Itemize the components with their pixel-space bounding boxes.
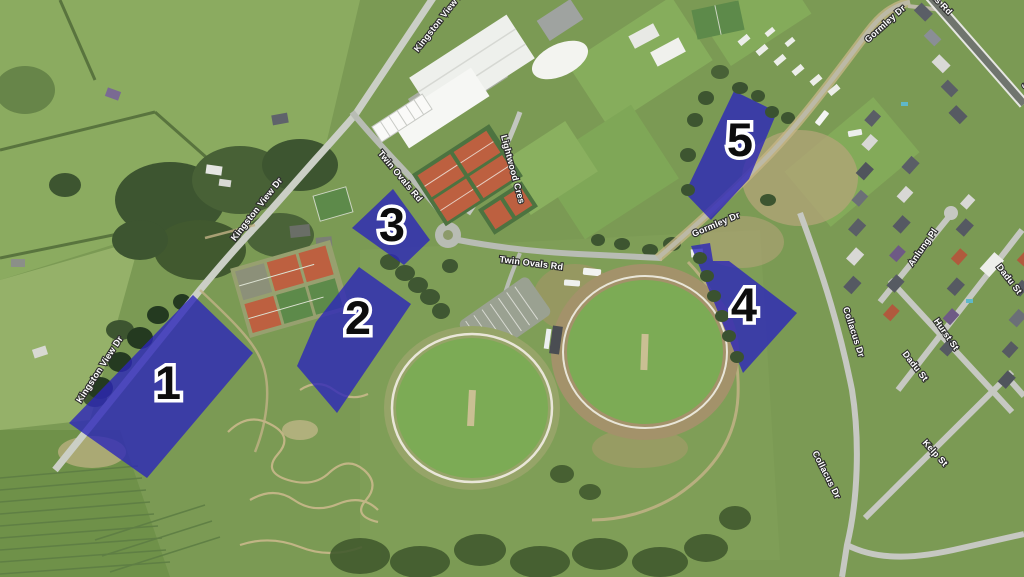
zone-5-number: 5 [727, 113, 753, 166]
zone-2-number: 2 [345, 291, 371, 344]
satellite-map[interactable]: Kingston View Dr Kingston View Dr Kingst… [0, 0, 1024, 577]
zone-1-number: 1 [155, 356, 181, 409]
zone-3-number: 3 [379, 198, 405, 251]
zone-4-number: 4 [731, 278, 757, 331]
